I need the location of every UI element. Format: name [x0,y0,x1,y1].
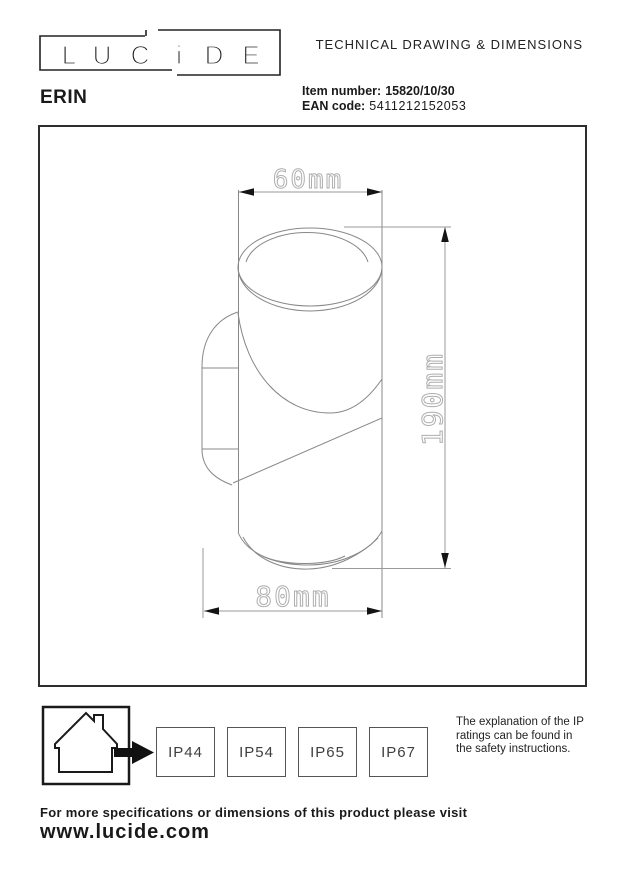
ean-code-row: EAN code:5411212152053 [302,99,466,114]
arrow-right-icon [367,607,382,615]
product-codes: Item number:15820/10/30 EAN code:5411212… [302,84,466,114]
indoor-outdoor-house-icon [38,702,162,792]
ip-rating-badge-ip54: IP54 [227,727,286,777]
logo-letter: L [62,40,76,70]
lucide-logo: L U C i D E [38,27,286,81]
ip-arrow-icon [114,741,154,764]
arrow-down-icon [441,553,449,568]
top-lens-rim [238,228,382,306]
logo-letters: L U C i D E [62,40,260,70]
lamp-technical-drawing: 60mm 190mm 80mm [38,125,587,687]
logo-letter: C [131,40,150,70]
wall-bracket [202,312,238,485]
arrow-left-icon [204,607,219,615]
document-title: TECHNICAL DRAWING & DIMENSIONS [316,37,583,52]
top-lens-rim-outer [238,267,382,311]
more-info-text: For more specifications or dimensions of… [40,805,467,820]
diagonal-cut-line [233,418,382,483]
bottom-lens-rim [238,531,382,565]
arrow-left-icon [239,188,254,196]
logo-letter: E [242,40,259,70]
arrow-right-icon [367,188,382,196]
technical-drawing-page: { "header": { "logo_letters": ["L","U","… [0,0,620,877]
product-name: ERIN [40,87,87,109]
dim-label-60mm: 60mm [273,165,344,195]
ean-code-label: EAN code: [302,99,365,113]
dim-label-80mm: 80mm [255,580,330,613]
dimension-lines [203,192,451,618]
ip-rating-badge-ip65: IP65 [298,727,357,777]
item-number-value: 15820/10/30 [385,84,455,98]
logo-letter: i [176,40,182,70]
ip-ratings-note: The explanation of the IP ratings can be… [456,716,590,757]
dimension-arrowheads [204,188,449,615]
house-icon [55,713,117,772]
swivel-joint-curve [238,313,382,413]
dim-label-190mm: 190mm [416,352,449,446]
website-link[interactable]: www.lucide.com [40,821,210,844]
ean-code-value: 5411212152053 [369,99,466,113]
logo-letter: U [93,40,112,70]
logo-letter: D [205,40,224,70]
ip-rating-badge-ip67: IP67 [369,727,428,777]
ip-rating-badge-ip44: IP44 [156,727,215,777]
lamp-outline [202,190,382,618]
item-number-label: Item number: [302,84,381,98]
item-number-row: Item number:15820/10/30 [302,84,466,99]
arrow-up-icon [441,227,449,242]
